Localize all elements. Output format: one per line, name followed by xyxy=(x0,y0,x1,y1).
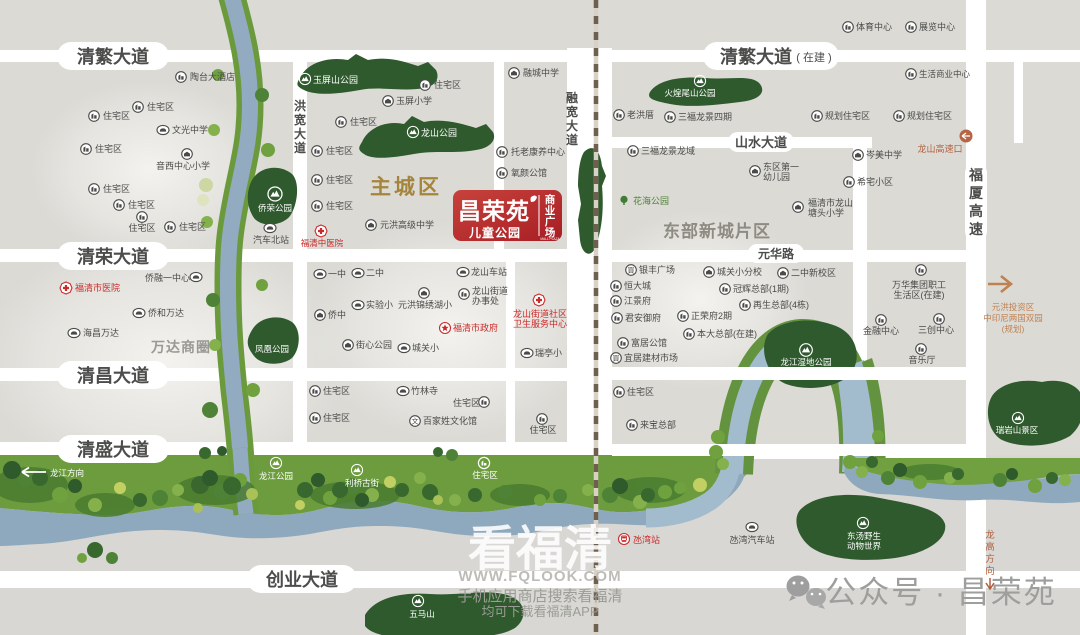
svg-text:住宅区: 住宅区 xyxy=(529,424,556,435)
svg-text:高: 高 xyxy=(985,541,995,553)
svg-text:手机应用商店搜索看福清: 手机应用商店搜索看福清 xyxy=(457,587,622,605)
svg-text:万达商圈: 万达商圈 xyxy=(150,339,211,355)
svg-text:住宅区: 住宅区 xyxy=(434,79,461,90)
svg-text:方: 方 xyxy=(985,553,995,565)
svg-text:陶台大酒店: 陶台大酒店 xyxy=(190,71,235,82)
svg-text:住宅区: 住宅区 xyxy=(103,183,130,194)
svg-text:商业广场: 商业广场 xyxy=(545,193,556,239)
svg-text:龙山高速口: 龙山高速口 xyxy=(917,143,962,154)
svg-text:再生总部(4栋): 再生总部(4栋) xyxy=(753,299,809,310)
svg-text:实验小: 实验小 xyxy=(366,299,393,310)
svg-text:火煌尾山公园: 火煌尾山公园 xyxy=(664,88,715,98)
svg-text:塘头小学: 塘头小学 xyxy=(808,207,844,218)
svg-text:侨荣公园: 侨荣公园 xyxy=(258,203,292,213)
svg-text:住宅区: 住宅区 xyxy=(128,222,155,233)
svg-text:融城中学: 融城中学 xyxy=(523,67,559,78)
svg-text:住宅区: 住宅区 xyxy=(103,110,130,121)
svg-text:凤凰公园: 凤凰公园 xyxy=(255,344,289,354)
svg-text:岑美中学: 岑美中学 xyxy=(866,149,902,160)
svg-text:创业大道: 创业大道 xyxy=(265,569,338,590)
svg-text:龙江公园: 龙江公园 xyxy=(259,471,293,481)
svg-text:元洪高级中学: 元洪高级中学 xyxy=(380,219,434,230)
svg-text:公众号 · 昌荣苑: 公众号 · 昌荣苑 xyxy=(825,575,1057,610)
svg-text:侨中: 侨中 xyxy=(328,309,346,320)
svg-text:清繁大道: 清繁大道 xyxy=(720,46,792,67)
svg-text:金融中心: 金融中心 xyxy=(863,325,899,336)
svg-text:均可下载看福清APP: 均可下载看福清APP xyxy=(481,604,598,619)
svg-text:花海公园: 花海公园 xyxy=(633,195,669,206)
svg-text:氹湾站: 氹湾站 xyxy=(633,534,660,545)
svg-text:住宅区: 住宅区 xyxy=(350,116,377,127)
svg-text:儿童公园: 儿童公园 xyxy=(468,225,521,240)
svg-text:昌荣苑: 昌荣苑 xyxy=(458,198,530,224)
svg-text:住宅区: 住宅区 xyxy=(326,200,353,211)
svg-text:清繁大道: 清繁大道 xyxy=(77,46,149,67)
svg-text:氹湾汽车站: 氹湾汽车站 xyxy=(729,534,774,545)
svg-text:百家姓文化馆: 百家姓文化馆 xyxy=(423,415,477,426)
svg-text:音西中心小学: 音西中心小学 xyxy=(156,160,210,171)
svg-text:城关小: 城关小 xyxy=(412,342,439,353)
svg-text:生活商业中心: 生活商业中心 xyxy=(919,69,971,79)
svg-text:中印尼两国双园: 中印尼两国双园 xyxy=(983,313,1043,323)
svg-text:瑞岩山景区: 瑞岩山景区 xyxy=(996,425,1039,435)
svg-text:住宅区: 住宅区 xyxy=(95,143,122,154)
svg-text:元华路: 元华路 xyxy=(758,246,795,261)
svg-text:玉屏小学: 玉屏小学 xyxy=(396,95,432,106)
svg-text:富居公馆: 富居公馆 xyxy=(631,337,667,348)
svg-text:(规划): (规划) xyxy=(1002,324,1025,334)
svg-text:龙山公园: 龙山公园 xyxy=(421,127,457,138)
svg-text:清昌大道: 清昌大道 xyxy=(77,365,149,386)
svg-text:冠辉总部(1期): 冠辉总部(1期) xyxy=(733,283,789,294)
svg-text:一中: 一中 xyxy=(328,268,346,279)
svg-text:来宝总部: 来宝总部 xyxy=(640,419,676,430)
svg-text:恒大城: 恒大城 xyxy=(624,280,651,291)
svg-text:福清市医院: 福清市医院 xyxy=(75,282,120,293)
svg-text:生活区(在建): 生活区(在建) xyxy=(894,289,945,300)
svg-text:住宅区: 住宅区 xyxy=(326,174,353,185)
svg-text:WWW.FQLOOK.COM: WWW.FQLOOK.COM xyxy=(458,568,621,585)
svg-text:住宅区: 住宅区 xyxy=(627,386,654,397)
svg-text:托老康养中心: 托老康养中心 xyxy=(511,146,565,157)
svg-text:利桥古街: 利桥古街 xyxy=(345,478,380,488)
svg-text:五马山: 五马山 xyxy=(409,609,435,619)
svg-text:清荣大道: 清荣大道 xyxy=(77,246,149,267)
svg-text:清盛大道: 清盛大道 xyxy=(77,439,149,460)
svg-text:龙江湿地公园: 龙江湿地公园 xyxy=(780,357,831,367)
svg-text:城关小分校: 城关小分校 xyxy=(717,266,762,277)
svg-text:侨和万达: 侨和万达 xyxy=(148,307,184,318)
svg-text:希宅小区: 希宅小区 xyxy=(857,176,893,187)
svg-text:( 在建 ): ( 在建 ) xyxy=(796,50,831,64)
svg-text:住宅区: 住宅区 xyxy=(326,145,353,156)
svg-text:幼儿园: 幼儿园 xyxy=(763,171,790,182)
svg-text:三创中心: 三创中心 xyxy=(918,324,954,335)
svg-text:瑞亭小: 瑞亭小 xyxy=(535,347,562,358)
svg-text:氧颜公馆: 氧颜公馆 xyxy=(511,167,547,178)
svg-text:汽车北站: 汽车北站 xyxy=(253,234,289,245)
svg-text:文光中学: 文光中学 xyxy=(172,124,208,135)
svg-text:二中: 二中 xyxy=(366,267,384,278)
svg-text:展览中心: 展览中心 xyxy=(919,21,955,32)
svg-text:东部新城片区: 东部新城片区 xyxy=(663,221,771,241)
svg-text:海昌万达: 海昌万达 xyxy=(83,327,119,338)
svg-text:元洪投资区: 元洪投资区 xyxy=(992,302,1035,312)
svg-text:体育中心: 体育中心 xyxy=(856,21,892,32)
svg-text:山水大道: 山水大道 xyxy=(735,135,787,150)
svg-text:音乐厅: 音乐厅 xyxy=(908,354,935,365)
svg-text:龙: 龙 xyxy=(985,529,995,541)
svg-text:老洪厝: 老洪厝 xyxy=(627,109,654,120)
svg-text:福清中医院: 福清中医院 xyxy=(301,238,344,248)
svg-text:东区第一: 东区第一 xyxy=(763,161,799,172)
svg-text:住宅区: 住宅区 xyxy=(147,101,174,112)
svg-text:三福龙景四期: 三福龙景四期 xyxy=(678,111,732,122)
svg-text:元洪锦绣湖小: 元洪锦绣湖小 xyxy=(398,299,452,310)
svg-text:玉屏山公园: 玉屏山公园 xyxy=(313,75,358,85)
svg-text:融宽大道: 融宽大道 xyxy=(565,90,578,147)
svg-text:规划住宅区: 规划住宅区 xyxy=(825,110,870,121)
svg-text:银丰广场: 银丰广场 xyxy=(639,264,675,275)
svg-text:东汤野生: 东汤野生 xyxy=(847,531,882,541)
svg-text:规划住宅区: 规划住宅区 xyxy=(907,110,952,121)
svg-text:万华集团职工: 万华集团职工 xyxy=(892,279,946,290)
svg-text:正荣府2期: 正荣府2期 xyxy=(691,310,732,321)
svg-text:住宅区: 住宅区 xyxy=(128,199,155,210)
svg-text:MALL PLAZA: MALL PLAZA xyxy=(540,237,560,241)
svg-text:龙江方向: 龙江方向 xyxy=(50,468,84,478)
svg-text:洪宽大道: 洪宽大道 xyxy=(293,98,306,155)
svg-text:住宅区: 住宅区 xyxy=(323,385,350,396)
svg-text:龙山街道: 龙山街道 xyxy=(472,285,508,296)
svg-text:福清市龙山: 福清市龙山 xyxy=(808,197,853,208)
svg-text:侨融一中心: 侨融一中心 xyxy=(145,272,190,283)
svg-text:卫生服务中心: 卫生服务中心 xyxy=(513,318,567,329)
svg-text:三福龙景龙域: 三福龙景龙域 xyxy=(641,145,695,156)
svg-text:动物世界: 动物世界 xyxy=(847,541,882,551)
svg-text:本大总部(在建): 本大总部(在建) xyxy=(697,328,757,339)
svg-text:宜居建材市场: 宜居建材市场 xyxy=(624,352,678,363)
svg-text:住宅区: 住宅区 xyxy=(453,397,480,408)
svg-text:办事处: 办事处 xyxy=(472,295,499,306)
svg-text:住宅区: 住宅区 xyxy=(472,470,498,480)
svg-text:君安御府: 君安御府 xyxy=(625,312,661,323)
svg-text:竹林寺: 竹林寺 xyxy=(411,385,438,396)
svg-text:福清市政府: 福清市政府 xyxy=(453,322,498,333)
svg-text:住宅区: 住宅区 xyxy=(323,412,350,423)
svg-text:主城区: 主城区 xyxy=(370,175,442,199)
svg-text:二中新校区: 二中新校区 xyxy=(791,267,836,278)
svg-text:住宅区: 住宅区 xyxy=(179,221,206,232)
svg-text:街心公园: 街心公园 xyxy=(356,339,392,350)
svg-text:龙山街道社区: 龙山街道社区 xyxy=(513,308,567,319)
svg-text:江景府: 江景府 xyxy=(624,295,651,306)
svg-text:龙山车站: 龙山车站 xyxy=(471,266,507,277)
